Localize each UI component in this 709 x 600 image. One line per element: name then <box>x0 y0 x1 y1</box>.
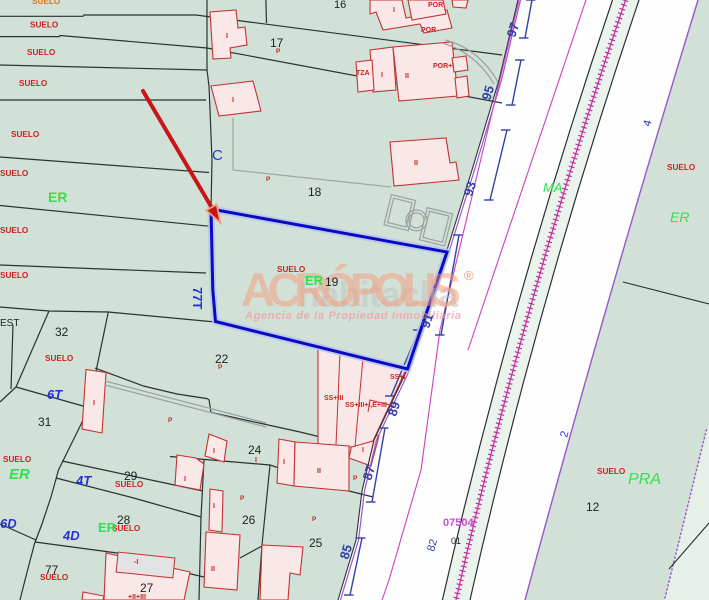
svg-text:27: 27 <box>140 581 154 595</box>
svg-text:P: P <box>168 417 173 424</box>
svg-text:PRA: PRA <box>628 471 661 488</box>
svg-text:SUELO: SUELO <box>32 0 61 6</box>
svg-text:18: 18 <box>308 185 322 199</box>
svg-text:SUELO: SUELO <box>30 21 59 30</box>
svg-text:TZA: TZA <box>356 70 370 77</box>
svg-text:4T: 4T <box>75 473 92 488</box>
svg-text:EST: EST <box>0 318 19 329</box>
svg-text:P: P <box>218 364 223 371</box>
svg-text:ER: ER <box>98 520 117 535</box>
svg-text:26: 26 <box>242 513 256 527</box>
svg-text:6T: 6T <box>47 387 63 402</box>
svg-text:ER: ER <box>9 466 30 483</box>
svg-text:P: P <box>276 48 281 55</box>
svg-text:77: 77 <box>45 563 59 577</box>
svg-text:31: 31 <box>38 415 52 429</box>
svg-text:POR: POR <box>428 2 443 9</box>
svg-text:SUELO: SUELO <box>0 226 29 235</box>
svg-text:P: P <box>240 495 245 502</box>
svg-text:II: II <box>414 160 418 167</box>
svg-text:C: C <box>212 147 223 164</box>
svg-text:I: I <box>213 448 215 455</box>
svg-text:SUELO: SUELO <box>3 455 32 464</box>
svg-text:SUELO: SUELO <box>667 163 696 172</box>
svg-text:I: I <box>93 400 95 407</box>
svg-text:SS+III: SS+III <box>324 395 343 402</box>
svg-text:77T: 77T <box>190 287 205 309</box>
svg-text:SUELO: SUELO <box>19 79 48 88</box>
svg-text:I: I <box>255 457 257 464</box>
svg-text:SUELO: SUELO <box>277 265 306 274</box>
svg-text:II: II <box>317 468 321 475</box>
svg-text:19: 19 <box>325 275 339 289</box>
svg-text:I: I <box>381 72 383 79</box>
svg-text:SS+I: SS+I <box>390 374 405 381</box>
svg-text:16: 16 <box>334 0 346 11</box>
svg-text:I: I <box>362 447 364 454</box>
svg-text:12: 12 <box>586 500 600 514</box>
svg-text:6D: 6D <box>0 516 17 531</box>
svg-text:32: 32 <box>55 325 69 339</box>
svg-text:01: 01 <box>451 536 461 546</box>
svg-text:ER: ER <box>48 189 67 205</box>
svg-text:-I: -I <box>134 559 138 566</box>
svg-text:I: I <box>213 503 215 510</box>
svg-text:®: ® <box>464 268 474 283</box>
svg-text:II: II <box>211 566 215 573</box>
svg-text:P: P <box>353 475 358 482</box>
svg-text:25: 25 <box>309 536 323 550</box>
svg-text:SS+III+I,E+III: SS+III+I,E+III <box>345 402 387 409</box>
svg-text:P: P <box>312 516 317 523</box>
svg-text:I: I <box>226 33 228 40</box>
svg-text:SUELO: SUELO <box>45 354 74 363</box>
svg-text:+II+III: +II+III <box>128 594 146 600</box>
svg-text:SUELO: SUELO <box>27 48 56 57</box>
svg-text:MA: MA <box>543 180 563 195</box>
svg-text:24: 24 <box>248 443 262 457</box>
svg-text:4D: 4D <box>62 528 80 543</box>
svg-text:29: 29 <box>124 469 138 483</box>
svg-text:07504: 07504 <box>443 517 474 529</box>
svg-text:POR+I: POR+I <box>433 63 454 70</box>
svg-text:I: I <box>232 97 234 104</box>
svg-text:I: I <box>184 476 186 483</box>
svg-text:POR: POR <box>421 27 436 34</box>
svg-text:I: I <box>283 459 285 466</box>
svg-text:ER: ER <box>670 209 689 225</box>
svg-text:ACRÓPOLIS: ACRÓPOLIS <box>241 263 461 316</box>
svg-text:SUELO: SUELO <box>597 467 626 476</box>
svg-text:ER: ER <box>305 273 324 288</box>
svg-text:28: 28 <box>117 513 131 527</box>
svg-text:P: P <box>266 176 271 183</box>
svg-text:SUELO: SUELO <box>0 169 29 178</box>
svg-text:I: I <box>393 7 395 14</box>
svg-text:SUELO: SUELO <box>11 130 40 139</box>
svg-text:SUELO: SUELO <box>0 271 29 280</box>
svg-text:II: II <box>405 73 409 80</box>
